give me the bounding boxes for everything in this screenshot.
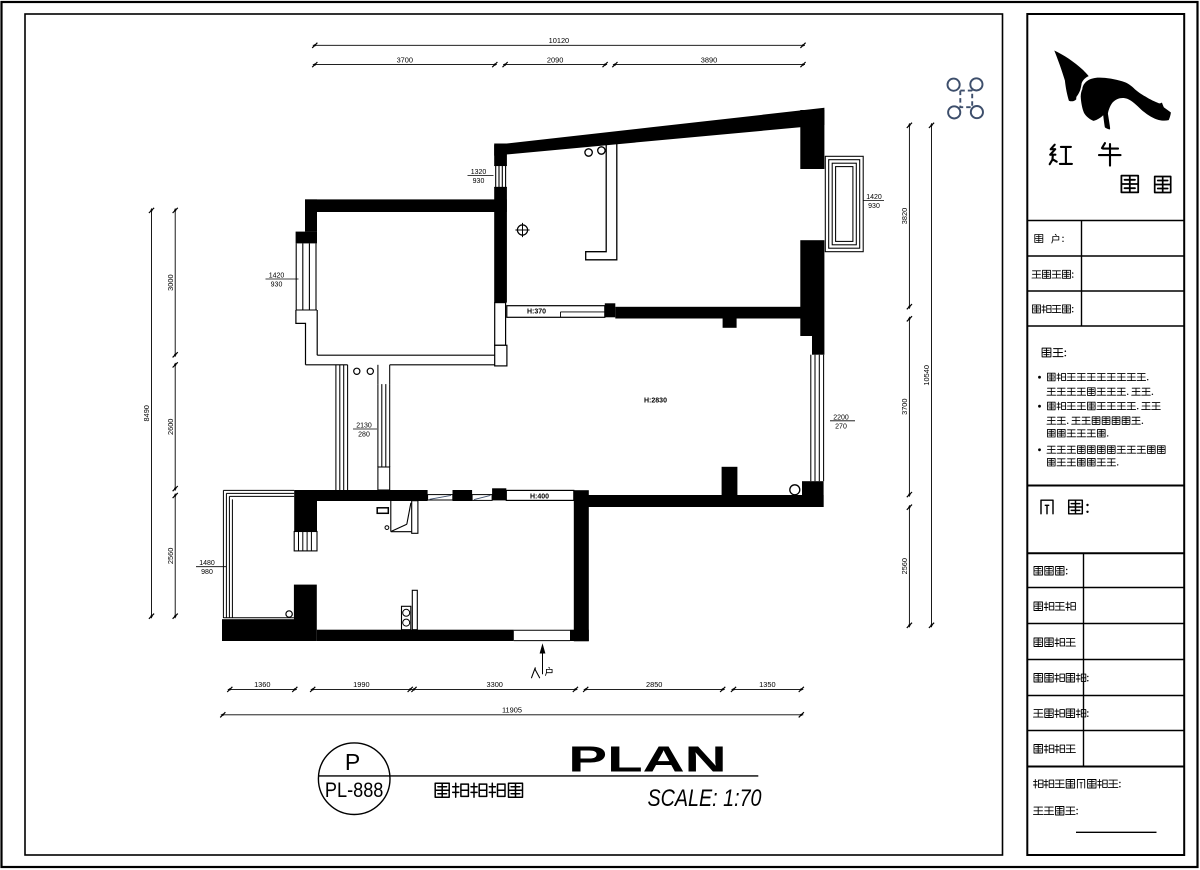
svg-text:H:370: H:370 [527, 309, 546, 316]
svg-text:930: 930 [271, 282, 283, 289]
svg-text:8490: 8490 [142, 405, 151, 421]
svg-text:1990: 1990 [353, 680, 369, 689]
svg-text:2130: 2130 [356, 423, 372, 430]
svg-text:3700: 3700 [900, 398, 909, 414]
svg-text:280: 280 [358, 432, 370, 439]
svg-text:270: 270 [835, 423, 847, 430]
svg-text:2850: 2850 [646, 680, 662, 689]
svg-text:3000: 3000 [166, 274, 175, 290]
svg-text:2560: 2560 [900, 558, 909, 574]
svg-text:10120: 10120 [549, 36, 570, 45]
svg-text:1350: 1350 [759, 680, 775, 689]
svg-text:H:2830: H:2830 [644, 398, 667, 405]
svg-text:2600: 2600 [166, 419, 175, 435]
svg-text:3890: 3890 [701, 55, 717, 64]
svg-text:PLAN: PLAN [568, 738, 726, 779]
svg-text:PL-888: PL-888 [325, 779, 384, 802]
svg-text:11905: 11905 [502, 706, 522, 715]
svg-text:10540: 10540 [922, 365, 931, 386]
svg-text:930: 930 [473, 178, 485, 185]
svg-text:1420: 1420 [269, 273, 285, 280]
svg-text:1480: 1480 [199, 560, 215, 567]
svg-text:H:400: H:400 [530, 493, 549, 500]
svg-text:3300: 3300 [486, 680, 502, 689]
svg-text:930: 930 [868, 203, 880, 210]
svg-text:P: P [345, 749, 360, 775]
svg-text:1320: 1320 [471, 169, 487, 176]
svg-text:3820: 3820 [900, 208, 909, 224]
svg-text:2560: 2560 [166, 548, 175, 564]
svg-text:2090: 2090 [547, 55, 563, 64]
svg-text:2200: 2200 [833, 414, 849, 421]
svg-text:1420: 1420 [866, 194, 882, 201]
svg-text:SCALE: 1:70: SCALE: 1:70 [648, 785, 763, 812]
svg-text:3700: 3700 [397, 55, 413, 64]
svg-text:980: 980 [201, 569, 213, 576]
svg-text:1360: 1360 [254, 680, 270, 689]
